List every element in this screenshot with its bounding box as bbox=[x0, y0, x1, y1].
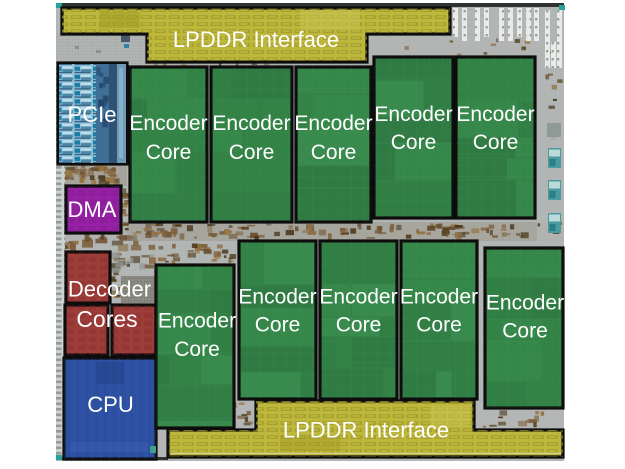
svg-text:Encoder: Encoder bbox=[212, 112, 290, 135]
svg-text:Encoder: Encoder bbox=[294, 112, 372, 135]
svg-text:Decoder: Decoder bbox=[68, 277, 151, 302]
svg-text:Encoder: Encoder bbox=[486, 292, 564, 315]
svg-text:Core: Core bbox=[502, 320, 548, 343]
svg-text:Core: Core bbox=[391, 131, 437, 154]
svg-text:DMA: DMA bbox=[68, 197, 117, 222]
svg-text:PCIe: PCIe bbox=[68, 102, 117, 127]
svg-text:LPDDR Interface: LPDDR Interface bbox=[173, 27, 339, 52]
svg-text:Core: Core bbox=[146, 141, 192, 164]
svg-text:Encoder: Encoder bbox=[129, 112, 207, 135]
svg-text:Core: Core bbox=[174, 338, 220, 361]
svg-text:Encoder: Encoder bbox=[374, 103, 452, 126]
svg-text:Cores: Cores bbox=[76, 306, 137, 332]
svg-text:Encoder: Encoder bbox=[456, 103, 534, 126]
svg-text:Core: Core bbox=[416, 314, 462, 337]
svg-text:LPDDR Interface: LPDDR Interface bbox=[283, 418, 449, 443]
svg-text:Core: Core bbox=[336, 314, 382, 337]
svg-text:CPU: CPU bbox=[87, 392, 133, 417]
svg-text:Core: Core bbox=[311, 141, 357, 164]
svg-text:Encoder: Encoder bbox=[319, 286, 397, 309]
svg-text:Encoder: Encoder bbox=[238, 286, 316, 309]
svg-text:Core: Core bbox=[255, 314, 301, 337]
svg-text:Encoder: Encoder bbox=[158, 310, 236, 333]
svg-text:Core: Core bbox=[229, 141, 275, 164]
svg-text:Core: Core bbox=[473, 131, 519, 154]
svg-text:Encoder: Encoder bbox=[400, 286, 478, 309]
